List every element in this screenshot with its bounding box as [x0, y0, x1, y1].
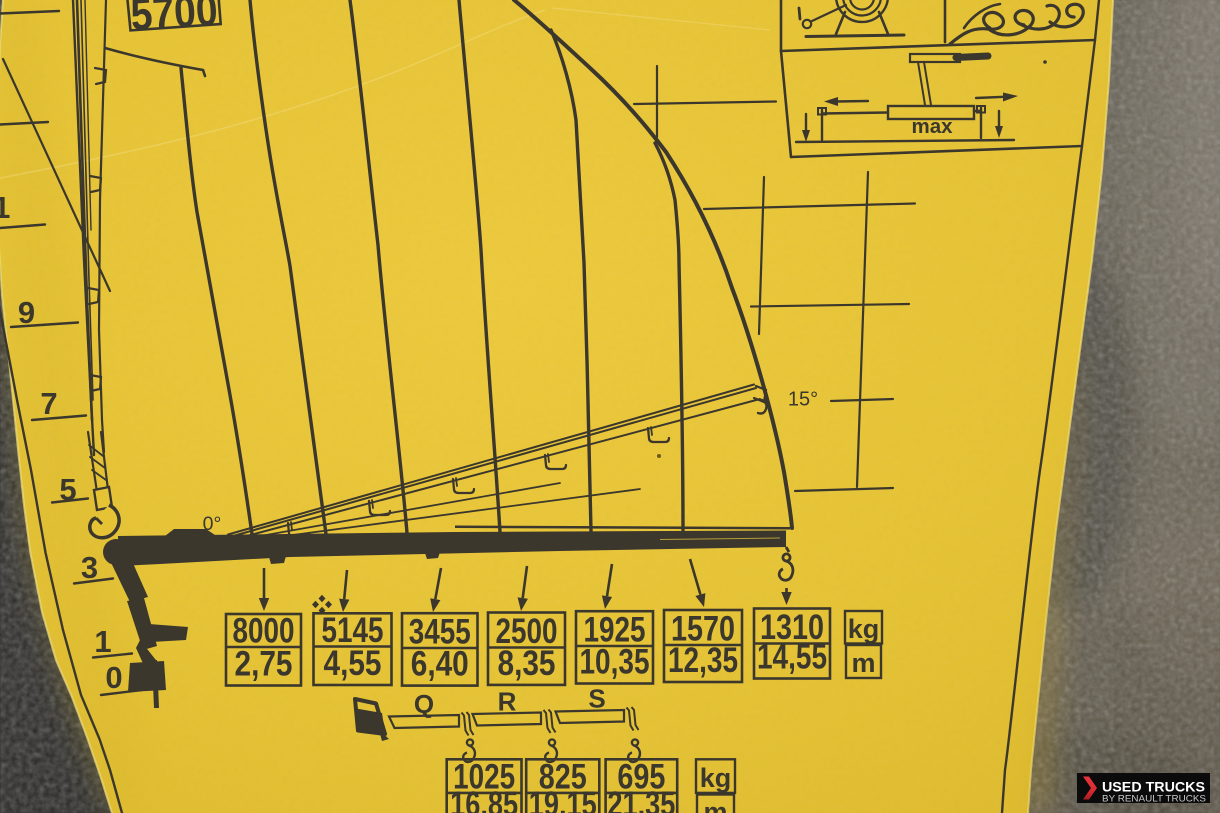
svg-text:5: 5 — [59, 472, 76, 507]
svg-text:9: 9 — [18, 295, 35, 330]
svg-text:3: 3 — [81, 550, 98, 585]
svg-text:BY RENAULT TRUCKS: BY RENAULT TRUCKS — [1102, 794, 1206, 804]
svg-text:19,15: 19,15 — [529, 785, 597, 813]
svg-text:21,35: 21,35 — [607, 785, 675, 813]
svg-text:0: 0 — [105, 660, 122, 695]
svg-text:10,35: 10,35 — [580, 643, 650, 682]
svg-text:7: 7 — [40, 386, 57, 421]
svg-text:5700: 5700 — [129, 0, 219, 40]
svg-text:R: R — [498, 687, 517, 717]
svg-text:14,55: 14,55 — [757, 638, 827, 677]
svg-text:1: 1 — [94, 624, 111, 659]
svg-text:kg: kg — [848, 614, 880, 644]
svg-text:12,35: 12,35 — [668, 641, 738, 680]
svg-text:11: 11 — [0, 190, 10, 225]
svg-text:6,40: 6,40 — [411, 645, 469, 684]
svg-text:m: m — [851, 648, 875, 678]
svg-text:2,75: 2,75 — [235, 645, 293, 684]
svg-text:16,85: 16,85 — [450, 785, 518, 813]
svg-text:15°: 15° — [788, 389, 818, 411]
svg-text:8,35: 8,35 — [498, 644, 556, 683]
svg-text:m: m — [703, 797, 727, 813]
svg-text:max: max — [911, 115, 953, 138]
svg-text:4,55: 4,55 — [324, 644, 382, 683]
svg-text:S: S — [588, 684, 605, 714]
svg-text:Q: Q — [414, 689, 434, 719]
svg-text:kg: kg — [700, 763, 732, 793]
svg-text:USED TRUCKS: USED TRUCKS — [1102, 780, 1205, 795]
